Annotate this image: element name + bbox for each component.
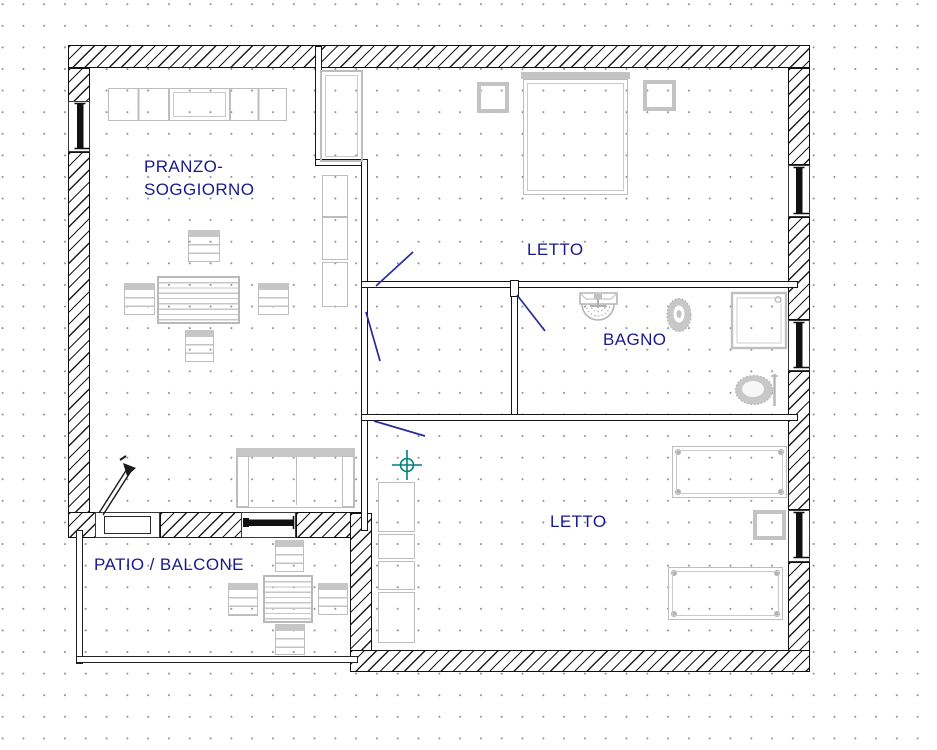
exterior-wall-top bbox=[68, 45, 810, 68]
kitchen-counter-2 bbox=[169, 88, 230, 121]
nightstand-right bbox=[643, 80, 676, 111]
interior-wall-hallway-west bbox=[361, 159, 368, 531]
exterior-wall-right-2 bbox=[788, 217, 810, 320]
bathroom-sink-icon bbox=[580, 293, 617, 320]
window-right-wall-2 bbox=[788, 320, 810, 371]
sofa-arm-left bbox=[237, 456, 249, 507]
wardrobe-module-3 bbox=[378, 561, 415, 590]
kitchen-counter-1 bbox=[108, 88, 169, 121]
kitchen-column-1 bbox=[322, 175, 348, 217]
patio-railing-bottom bbox=[76, 656, 358, 663]
label-bedroom2: LETTO bbox=[550, 510, 606, 533]
window-left-wall bbox=[68, 101, 90, 152]
label-bedroom1: LETTO bbox=[527, 238, 583, 261]
sofa bbox=[236, 448, 355, 508]
window-living-south bbox=[241, 512, 296, 538]
dining-table bbox=[157, 276, 240, 324]
shower-icon bbox=[732, 293, 786, 348]
patio-chair-right bbox=[318, 583, 348, 615]
label-living-room: PRANZO- SOGGIORNO bbox=[144, 155, 254, 201]
exterior-wall-left-upper bbox=[68, 68, 90, 102]
patio-chair-left bbox=[228, 583, 258, 616]
exterior-wall-right-4 bbox=[788, 562, 810, 652]
exterior-wall-left-lower bbox=[68, 152, 90, 538]
sofa-back bbox=[236, 448, 355, 457]
door-swing-bedroom2 bbox=[374, 421, 425, 436]
tall-cabinet bbox=[320, 70, 363, 162]
exterior-wall-right-1 bbox=[788, 68, 810, 165]
patio-door-leaf bbox=[99, 456, 136, 515]
toilet-icon bbox=[667, 299, 691, 332]
patio-chair-bottom bbox=[275, 624, 305, 655]
exterior-wall-bottom bbox=[350, 650, 810, 672]
exterior-wall-right-3 bbox=[788, 371, 810, 510]
door-swing-bathroom bbox=[517, 295, 545, 331]
patio-door-frame bbox=[104, 516, 151, 534]
kitchen-column-3 bbox=[322, 262, 348, 307]
sofa-cushion-divider bbox=[296, 457, 298, 505]
washbasin-icon bbox=[736, 374, 779, 406]
label-living-line2: SOGGIORNO bbox=[144, 178, 254, 201]
wardrobe-module-4 bbox=[378, 592, 415, 643]
reference-marker-icon bbox=[392, 450, 422, 480]
dining-chair-top bbox=[188, 230, 220, 262]
double-bed bbox=[523, 79, 628, 195]
label-living-line1: PRANZO- bbox=[144, 155, 254, 178]
window-right-wall-1 bbox=[788, 165, 810, 217]
sofa-arm-right bbox=[342, 456, 354, 507]
kitchen-counter-3 bbox=[230, 88, 287, 121]
floor-plan-canvas: PRANZO- SOGGIORNO LETTO BAGNO LETTO PATI… bbox=[0, 0, 937, 750]
door-swing-hallway bbox=[366, 312, 380, 361]
patio-table bbox=[263, 575, 313, 623]
exterior-wall-patio-right bbox=[350, 513, 372, 652]
label-patio: PATIO / BALCONE bbox=[94, 553, 244, 576]
single-bed-1 bbox=[672, 446, 787, 498]
interior-wall-bathroom-west bbox=[511, 286, 518, 417]
dining-chair-bottom bbox=[185, 330, 214, 362]
nightstand-bedroom2 bbox=[753, 510, 786, 540]
patio-chair-top bbox=[275, 540, 304, 572]
patio-railing-left bbox=[76, 530, 83, 664]
double-bed-headboard bbox=[521, 72, 630, 79]
interior-wall-bedroom2-north bbox=[361, 414, 798, 421]
single-bed-2 bbox=[668, 567, 783, 620]
window-right-wall-3 bbox=[788, 510, 810, 562]
wardrobe-module-1 bbox=[378, 482, 415, 532]
kitchen-column-2 bbox=[322, 217, 348, 260]
interior-wall-bedroom1-south bbox=[361, 281, 798, 288]
dining-chair-right bbox=[258, 283, 289, 315]
wall-living-patio-b bbox=[160, 512, 242, 538]
nightstand-left bbox=[477, 82, 509, 113]
bathroom-door-jamb bbox=[510, 280, 519, 297]
dining-chair-left bbox=[124, 283, 155, 315]
wardrobe-module-2 bbox=[378, 534, 415, 559]
label-bathroom: BAGNO bbox=[603, 328, 666, 351]
